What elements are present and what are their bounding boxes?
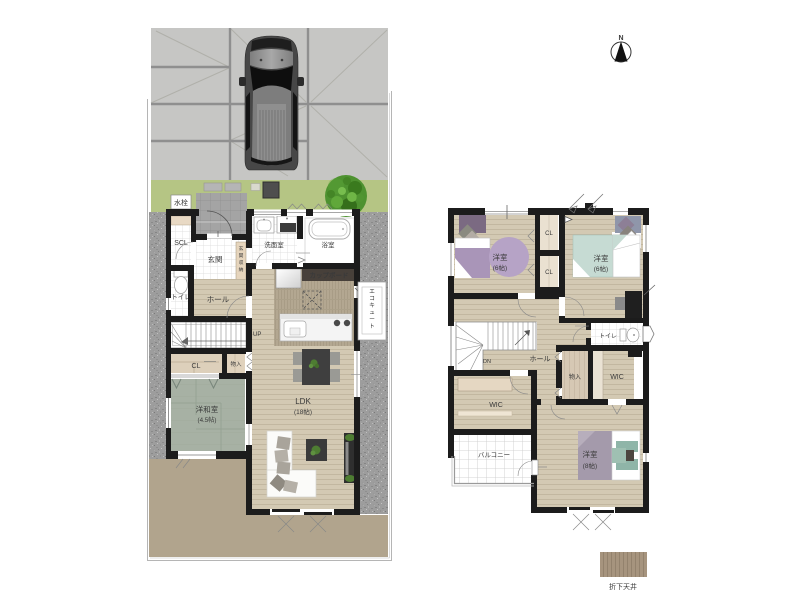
svg-text:洗面室: 洗面室 xyxy=(264,240,284,249)
svg-text:ー: ー xyxy=(369,317,375,323)
svg-text:(6帖): (6帖) xyxy=(594,264,608,273)
svg-text:トイレ: トイレ xyxy=(171,294,191,301)
svg-text:LDK: LDK xyxy=(295,397,311,406)
svg-text:浴室: 浴室 xyxy=(322,240,336,249)
svg-text:DN: DN xyxy=(483,359,491,365)
svg-text:水栓: 水栓 xyxy=(174,198,188,207)
svg-text:洋室: 洋室 xyxy=(594,253,609,263)
svg-text:納: 納 xyxy=(239,266,244,273)
svg-text:(6帖): (6帖) xyxy=(493,263,507,272)
svg-text:物入: 物入 xyxy=(569,373,581,381)
svg-text:コ: コ xyxy=(369,295,375,302)
svg-text:(8帖): (8帖) xyxy=(583,461,597,470)
svg-text:玄: 玄 xyxy=(239,245,244,252)
svg-text:洋室: 洋室 xyxy=(583,449,598,459)
svg-text:WIC: WIC xyxy=(489,402,503,409)
svg-text:物入: 物入 xyxy=(230,360,242,368)
svg-text:CL: CL xyxy=(192,363,201,370)
svg-text:(18帖): (18帖) xyxy=(294,407,312,416)
svg-text:ュ: ュ xyxy=(369,310,375,316)
svg-text:関: 関 xyxy=(239,253,244,259)
svg-text:ホール: ホール xyxy=(530,355,551,363)
svg-text:洋室: 洋室 xyxy=(493,252,508,262)
svg-text:キ: キ xyxy=(369,303,375,309)
svg-text:エ: エ xyxy=(369,288,375,295)
svg-text:バルコニー: バルコニー xyxy=(478,451,510,459)
svg-text:ホール: ホール xyxy=(207,295,230,304)
svg-text:UP: UP xyxy=(253,332,261,338)
svg-text:ト: ト xyxy=(369,324,375,330)
svg-text:カップボード: カップボード xyxy=(310,271,349,280)
svg-text:WIC: WIC xyxy=(610,374,624,381)
svg-text:(4.5帖): (4.5帖) xyxy=(198,416,217,424)
svg-text:CL: CL xyxy=(545,270,553,276)
svg-text:玄関: 玄関 xyxy=(208,254,223,264)
svg-text:折下天井: 折下天井 xyxy=(609,582,637,591)
svg-text:洋和室: 洋和室 xyxy=(196,404,219,414)
svg-text:CL: CL xyxy=(545,231,553,237)
svg-text:トイレ: トイレ xyxy=(599,334,617,340)
svg-text:収: 収 xyxy=(239,259,244,266)
svg-text:N: N xyxy=(618,35,623,42)
